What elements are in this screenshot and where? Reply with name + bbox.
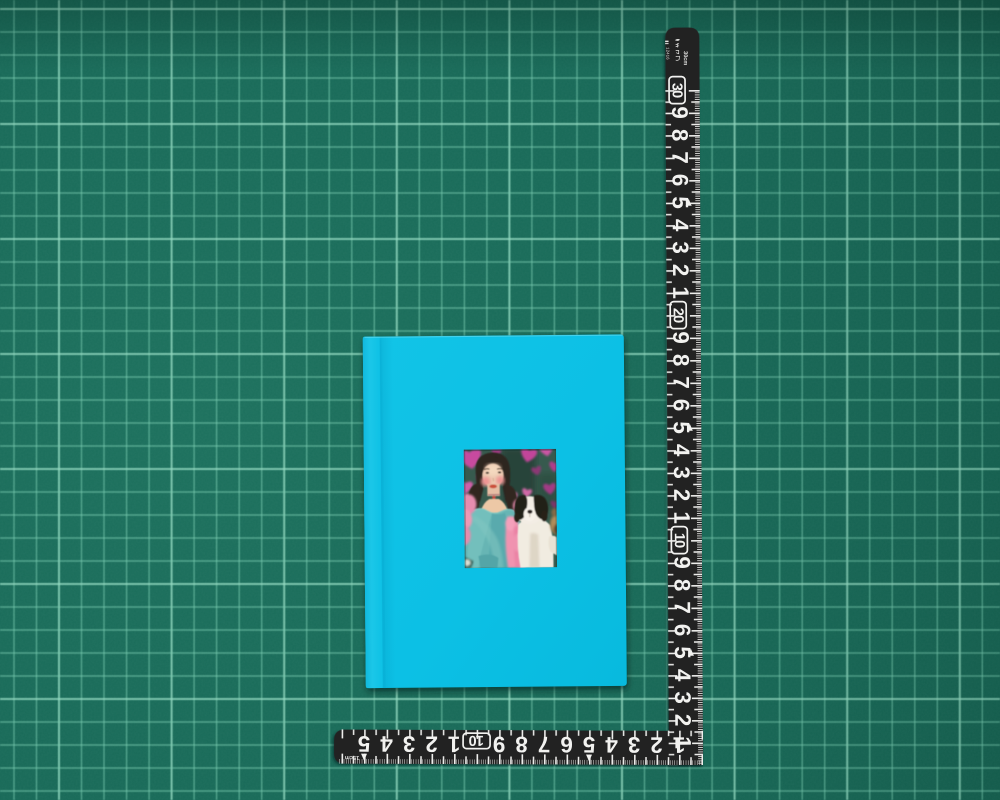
- svg-text:8: 8: [515, 732, 528, 757]
- svg-text:3: 3: [670, 691, 695, 704]
- svg-text:7: 7: [670, 601, 695, 614]
- svg-text:5: 5: [583, 732, 596, 757]
- svg-text:30cm: 30cm: [682, 51, 688, 65]
- svg-text:2: 2: [668, 264, 693, 277]
- svg-text:8: 8: [667, 129, 692, 142]
- svg-text:8: 8: [670, 579, 695, 592]
- svg-text:4: 4: [670, 669, 695, 682]
- svg-text:3: 3: [628, 732, 641, 757]
- svg-text:10: 10: [671, 533, 687, 548]
- svg-text:1: 1: [673, 732, 686, 757]
- svg-text:1: 1: [669, 511, 694, 524]
- svg-text:4: 4: [668, 219, 693, 232]
- svg-text:3: 3: [668, 241, 693, 254]
- svg-text:1: 1: [448, 732, 461, 757]
- svg-text:10: 10: [469, 732, 484, 748]
- svg-text:6: 6: [560, 732, 573, 757]
- svg-text:3: 3: [669, 466, 694, 479]
- svg-text:6: 6: [670, 624, 695, 637]
- svg-text:6: 6: [669, 399, 694, 412]
- svg-text:20: 20: [670, 308, 686, 323]
- svg-text:12416: 12416: [665, 47, 670, 60]
- svg-text:15cm: 15cm: [345, 754, 359, 760]
- svg-text:2: 2: [425, 731, 438, 756]
- svg-text:9: 9: [493, 732, 506, 757]
- svg-text:5: 5: [358, 731, 371, 756]
- svg-text:9: 9: [669, 556, 694, 569]
- svg-text:2: 2: [669, 489, 694, 502]
- svg-text:30: 30: [669, 83, 685, 98]
- svg-text:7: 7: [669, 376, 694, 389]
- svg-text:2: 2: [650, 732, 663, 757]
- svg-text:9: 9: [668, 331, 693, 344]
- svg-text:7: 7: [538, 732, 551, 757]
- svg-text:8: 8: [668, 354, 693, 367]
- svg-text:3: 3: [403, 731, 416, 756]
- svg-text:9: 9: [667, 106, 692, 119]
- svg-text:7: 7: [667, 151, 692, 164]
- svg-text:2: 2: [670, 714, 695, 727]
- svg-text:4: 4: [605, 732, 618, 757]
- svg-text:4: 4: [669, 444, 694, 457]
- svg-text:6: 6: [668, 174, 693, 187]
- svg-text:4: 4: [380, 731, 393, 756]
- svg-text:1: 1: [668, 286, 693, 299]
